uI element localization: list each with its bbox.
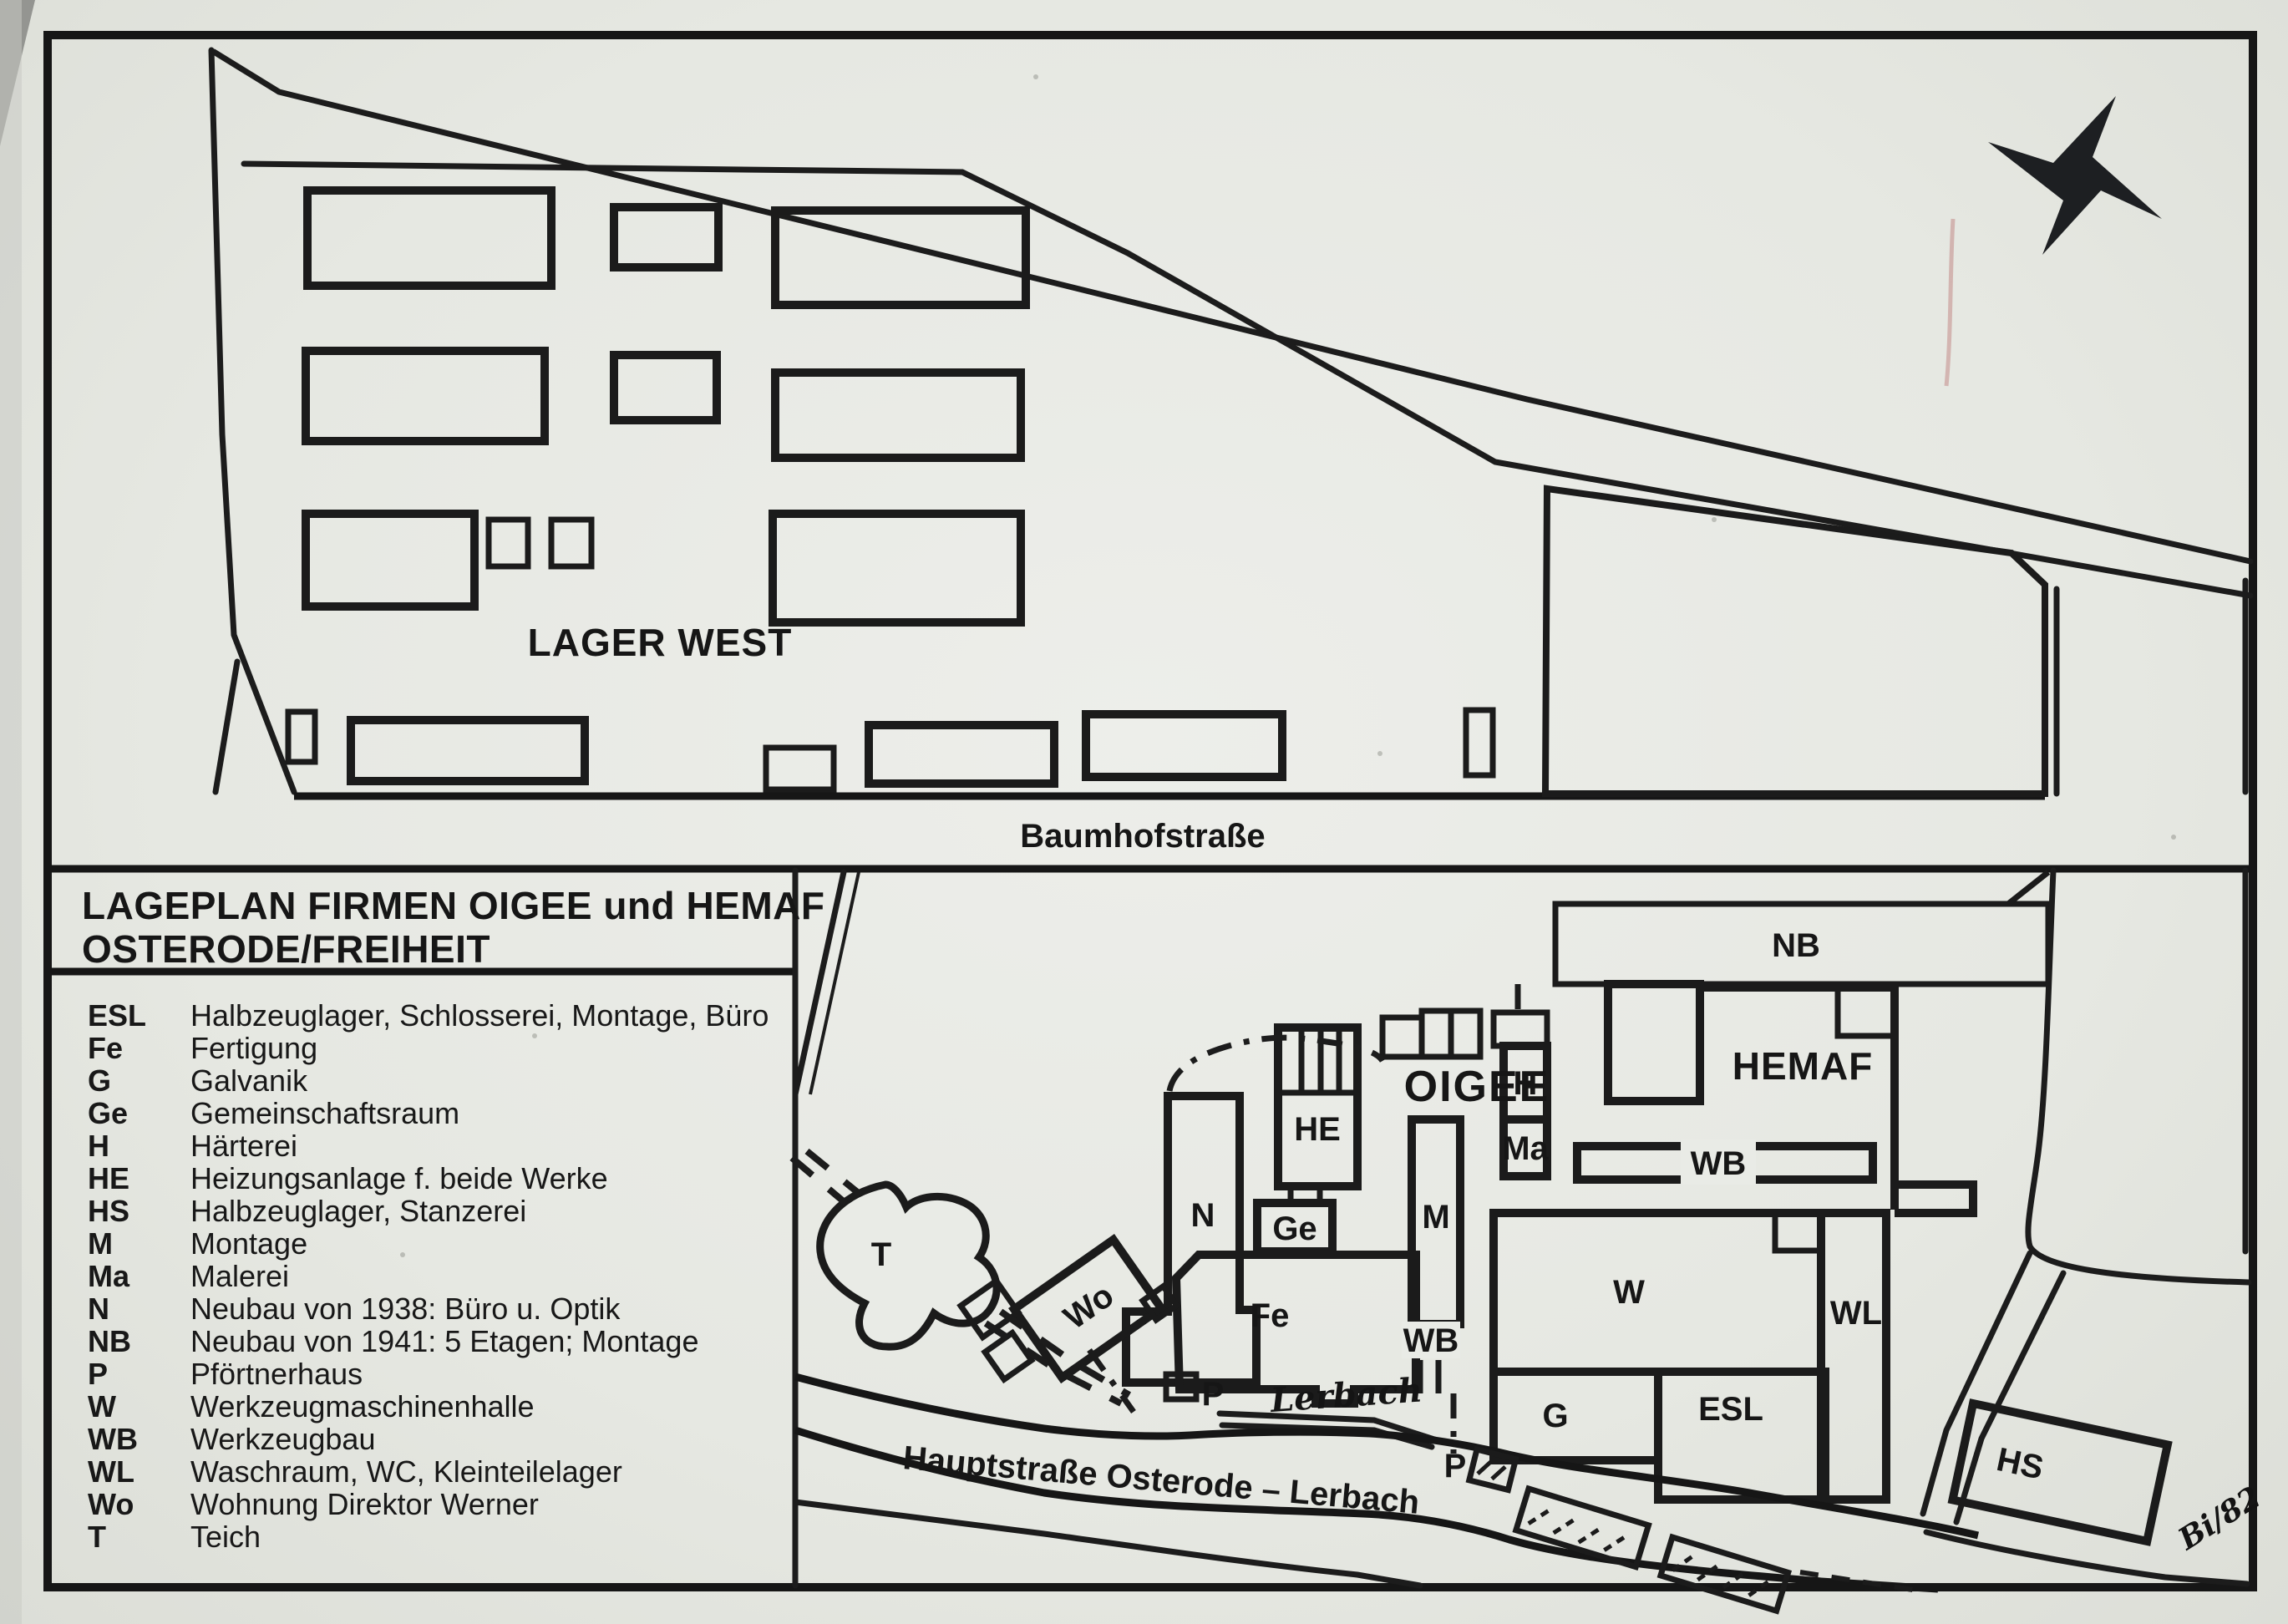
legend-abbr: H [88,1129,109,1163]
legend-abbr: HE [88,1161,129,1195]
speck [2171,835,2176,840]
legend-desc: Fertigung [190,1031,317,1065]
legend-abbr: Ge [88,1096,128,1130]
legend-desc: Neubau von 1938: Büro u. Optik [190,1292,621,1326]
hemaf-foot [1895,1185,1973,1213]
lager-west-barracks [288,190,1493,789]
building-label-hs: HS [1993,1441,2047,1487]
legend-abbr: N [88,1292,109,1326]
legend-abbr: P [88,1357,108,1391]
page-title-line1: LAGEPLAN FIRMEN OIGEE und HEMAF [82,884,824,927]
building-label-wl: WL [1830,1295,1882,1332]
building-label-esl: ESL [1698,1391,1763,1428]
barracks-building [1086,714,1282,777]
speck [532,1033,537,1038]
shed-hatched [1469,1449,1516,1490]
barracks-building [306,351,545,441]
legend-desc: Pförtnerhaus [190,1357,363,1391]
scanned-site-plan-page: LAGER WEST Baumhofstraße LAGEPLAN FIRMEN… [0,0,2288,1624]
building-label-n: N [1191,1197,1215,1234]
nb-corner-bevel [2008,872,2048,904]
building-he-boiler-detail [1278,1028,1357,1093]
building-wo-annex [985,1333,1032,1380]
building-label-p2: P [1444,1448,1467,1484]
shed-outline [1469,1449,1516,1490]
building-label-nb: NB [1772,927,1820,964]
legend-abbr: T [88,1520,106,1554]
building-g [1494,1372,1658,1460]
legend-desc: Gemeinschaftsraum [190,1096,459,1130]
building-label-ge: Ge [1272,1210,1316,1247]
legend-desc: Halbzeuglager, Stanzerei [190,1194,526,1228]
company-label-hemaf: HEMAF [1732,1044,1874,1088]
barracks-building [614,207,718,267]
building-hs [1952,1403,2167,1541]
building-w-step [1775,1213,1821,1251]
barracks-building [288,712,315,762]
barracks-building [614,355,717,420]
building-label-wb-hemaf: WB [1691,1145,1747,1182]
legend-abbr: W [88,1389,116,1424]
street-label-baumhofstrasse: Baumhofstraße [1020,818,1265,855]
legend-desc: Montage [190,1226,307,1261]
oigee-small-building [1382,1018,1422,1057]
building-label-wb-oigee: WB [1403,1322,1459,1359]
legend: ESLHalbzeuglager, Schlosserei, Montage, … [88,998,769,1554]
legend-abbr: Ma [88,1259,130,1293]
barracks-building [1466,710,1493,775]
legend-desc: Werkzeugbau [190,1422,375,1456]
wb-corridor-lines [1420,1360,1438,1393]
legend-desc: Halbzeuglager, Schlosserei, Montage, Bür… [190,998,769,1033]
barracks-building [773,514,1021,622]
site-plan-drawing: LAGER WEST Baumhofstraße LAGEPLAN FIRMEN… [0,0,2288,1624]
barracks-building [775,373,1021,458]
legend-desc: Neubau von 1941: 5 Etagen; Montage [190,1324,698,1358]
building-hs-group: HS [1952,1403,2167,1541]
legend-desc: Wohnung Direktor Werner [190,1487,539,1521]
scan-artifact-red-line [1946,219,1953,386]
hemaf-annex-building [1608,984,1700,1101]
building-label-t: T [871,1236,891,1273]
scan-edge-shadow [0,0,22,1624]
building-label-he: HE [1294,1111,1341,1148]
road-right-lower-west-line [2028,870,2249,1282]
building-label-fe: Fe [1251,1297,1290,1334]
legend-abbr: ESL [88,998,146,1033]
legend-desc: Waschraum, WC, Kleinteilelager [190,1454,622,1489]
barracks-building [306,514,474,606]
company-label-oigee: OIGEE [1404,1063,1550,1111]
building-label-ma: Ma [1502,1130,1549,1167]
building-wl [1821,1213,1886,1500]
barracks-building [351,720,585,781]
building-n [1126,1096,1256,1383]
legend-abbr: WL [88,1454,134,1489]
street-label-hauptstrasse: Hauptstraße Osterode – Lerbach [901,1439,1421,1521]
road-diagonal-upper [214,52,2250,561]
legend-abbr: WB [88,1422,138,1456]
barracks-building [766,748,834,789]
legend-desc: Heizungsanlage f. beide Werke [190,1161,608,1195]
legend-abbr: HS [88,1194,129,1228]
paper-specks [400,74,2176,1257]
legend-desc: Werkzeugmaschinenhalle [190,1389,535,1424]
legend-desc: Härterei [190,1129,297,1163]
legend-abbr: M [88,1226,113,1261]
building-label-g: G [1542,1398,1568,1434]
legend-abbr: Wo [88,1487,134,1521]
legend-desc: Galvanik [190,1063,308,1098]
building-label-w: W [1613,1274,1645,1311]
hemaf-notch [1838,987,1895,1036]
legend-desc: Malerei [190,1259,289,1293]
page-title-line2: OSTERODE/FREIHEIT [82,927,490,971]
barracks-building [307,190,551,286]
legend-abbr: NB [88,1324,131,1358]
building-label-p1: P [1202,1376,1225,1413]
legend-desc: Teich [190,1520,261,1554]
legend-abbr: Fe [88,1031,123,1065]
building-w [1494,1213,1821,1372]
compass-star-icon [1988,96,2162,255]
road-hs-west-line2 [1956,1273,2063,1522]
oigee-small-building [1494,1012,1547,1046]
road-lager-west-left-branch [216,662,237,792]
speck [1712,517,1717,522]
track-dashed-se [986,1312,1129,1403]
legend-abbr: G [88,1063,111,1098]
building-label-wo: Wo [1058,1277,1121,1337]
field-block-outline [1545,489,2045,794]
stream-label-lerbach: Lerbach [1268,1370,1423,1420]
speck [1377,751,1382,756]
speck [1033,74,1038,79]
building-label-m: M [1422,1199,1449,1236]
speck [400,1252,405,1257]
barracks-building [551,520,591,566]
area-label-lager-west: LAGER WEST [528,621,793,664]
barracks-building [489,520,528,566]
barracks-building [869,725,1054,784]
